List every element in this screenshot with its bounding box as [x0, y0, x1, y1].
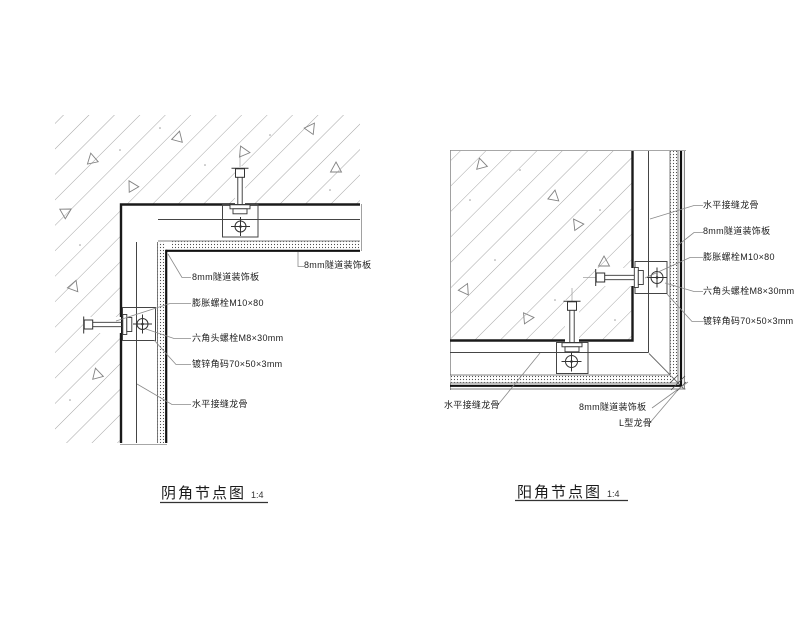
- label-l-keel: L型龙骨: [619, 418, 652, 429]
- label-tunnel-panel-right: 8mm隧道装饰板: [304, 260, 371, 271]
- cad-linework: [0, 0, 800, 640]
- label-angle-bracket: 镀锌角码70×50×3mm: [703, 316, 793, 327]
- label-joint-keel-bottom: 水平接缝龙骨: [444, 400, 500, 411]
- tunnel-panel-right: [670, 151, 684, 390]
- concrete-hatch: [451, 151, 633, 340]
- tunnel-panel-bottom: [450, 375, 686, 389]
- title-scale: 1:4: [607, 489, 620, 499]
- label-expansion-bolt: 膨胀螺栓M10×80: [192, 298, 264, 309]
- right-detail-linework: [450, 150, 703, 501]
- label-tunnel-panel-bottom: 8mm隧道装饰板: [579, 402, 646, 413]
- title-text: 阳角节点图: [517, 484, 602, 501]
- title-text: 阴角节点图: [161, 485, 246, 502]
- label-expansion-bolt: 膨胀螺栓M10×80: [703, 252, 775, 263]
- tunnel-panel-left: [157, 242, 166, 443]
- tunnel-panel-top: [158, 241, 360, 251]
- label-tunnel-panel: 8mm隧道装饰板: [192, 272, 259, 283]
- label-angle-bracket: 镀锌角码70×50×3mm: [192, 359, 282, 370]
- label-tunnel-panel: 8mm隧道装饰板: [703, 226, 770, 237]
- drawing-sheet: 8mm隧道装饰板 膨胀螺栓M10×80 六角头螺栓M8×30mm 镀锌角码70×…: [0, 0, 800, 640]
- title-scale: 1:4: [251, 490, 264, 500]
- label-hex-bolt: 六角头螺栓M8×30mm: [192, 333, 283, 344]
- label-joint-keel: 水平接缝龙骨: [192, 399, 248, 410]
- label-joint-keel: 水平接缝龙骨: [703, 200, 759, 211]
- label-hex-bolt: 六角头螺栓M8×30mm: [703, 286, 794, 297]
- joint-keel-lines: [137, 220, 361, 444]
- right-detail-title: 阳角节点图1:4: [517, 481, 620, 502]
- left-detail-title: 阴角节点图1:4: [161, 482, 264, 503]
